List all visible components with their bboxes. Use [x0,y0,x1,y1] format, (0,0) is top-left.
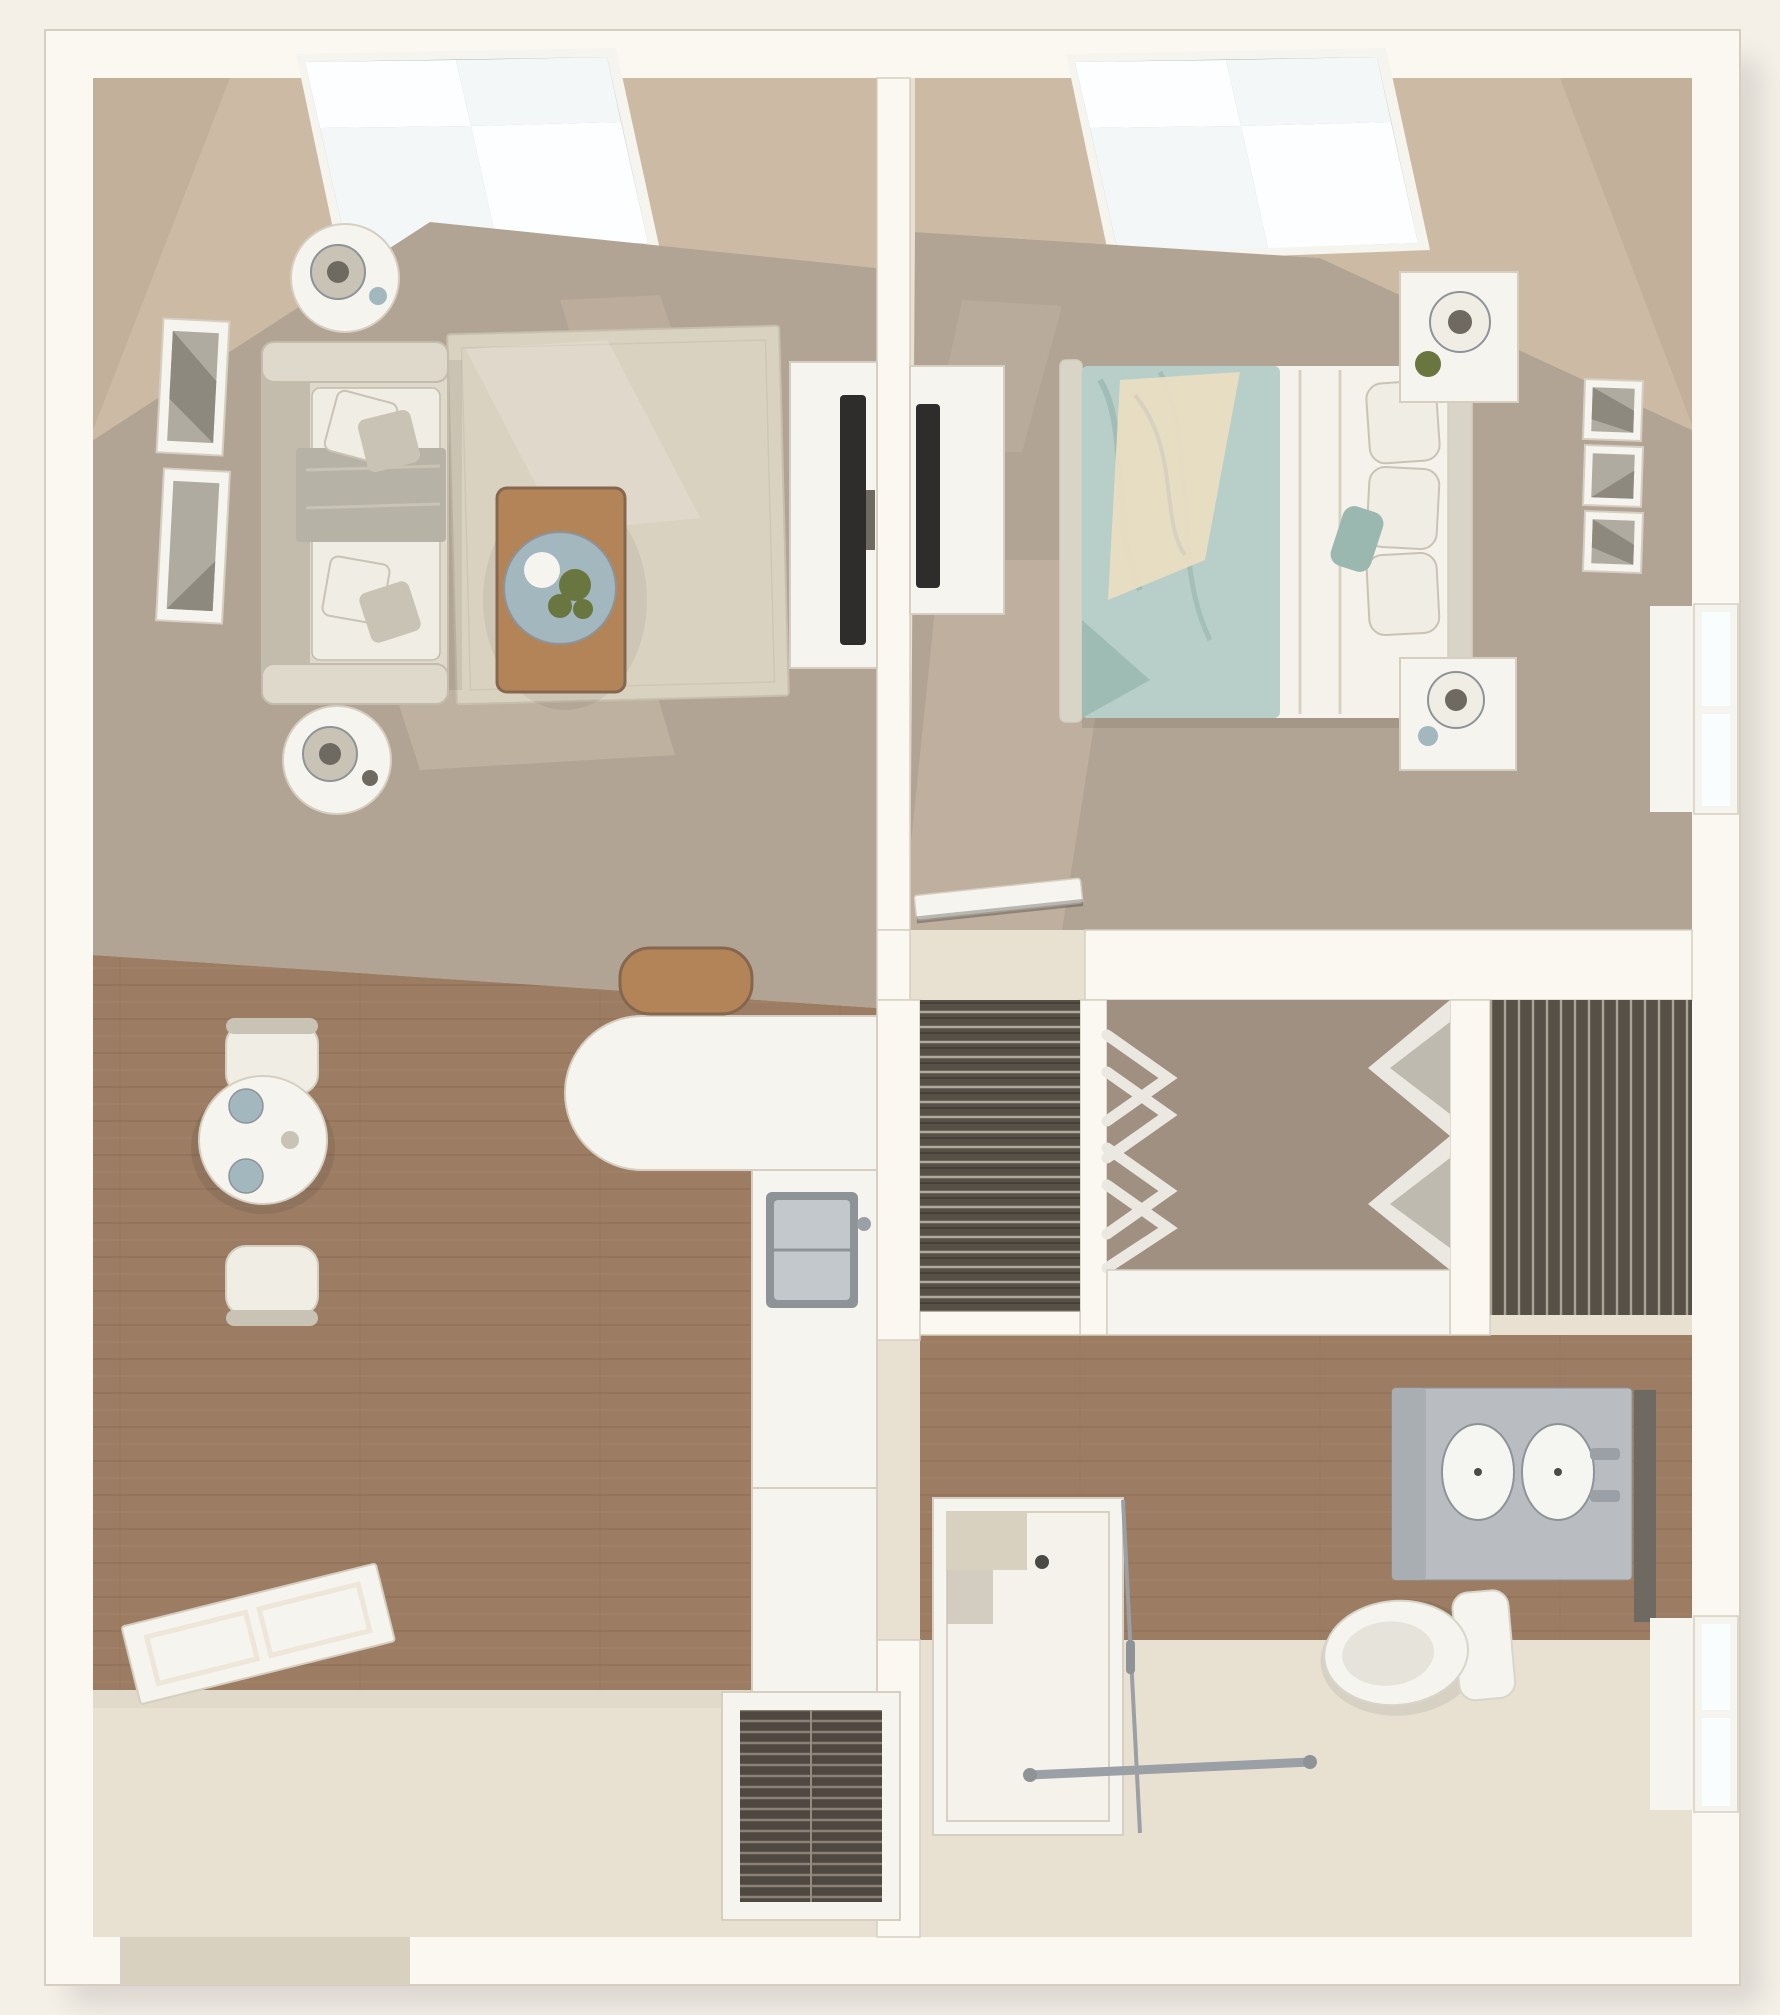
skylight-pane [456,57,621,126]
wire-shelves-texture [920,1000,1080,1312]
faucet-icon [1590,1490,1620,1502]
tv-mount [866,490,875,550]
bathroom-window [1650,1616,1738,1812]
walk-in-shower [933,1498,1140,1835]
closet-base-wall [920,1310,1080,1335]
skylight-pane [1241,122,1418,248]
lamp-finial [1445,689,1467,711]
lamp-finial [319,743,341,765]
skylight-pane [1226,57,1391,126]
window-sill [1650,1618,1694,1810]
wall-art-living [156,318,230,623]
dresser-tv [910,366,1004,614]
entry-doorway-gap [120,1937,410,1985]
dining-chair-back [226,1310,318,1326]
lamp-finial [327,261,349,283]
side-table-lamp-top [291,224,399,332]
window-pane [1702,1624,1730,1710]
skylight-bedroom [1066,48,1430,262]
grab-bar-mount [1023,1768,1037,1782]
bedroom-window [1650,604,1738,814]
closet-shelf-counter [1107,1270,1450,1335]
closet-divider-wall [1450,1000,1490,1335]
flat-tv-icon [916,404,940,588]
decor-bowl [524,552,560,588]
hvac-louver-closet [722,1692,900,1920]
sink-drain [1474,1468,1482,1476]
wood-basket [620,948,752,1014]
shower-bench-step [947,1570,993,1624]
plant-icon [573,599,593,619]
wall-art-bedroom [1583,379,1643,573]
closet-divider-wall [1080,1000,1107,1335]
table-decor [369,287,387,305]
kitchen-faucet-icon [857,1217,871,1231]
floor-plan-render [0,0,1780,2015]
bath-left-wall-upper [877,1000,920,1340]
table-decor [362,770,378,786]
sink-drain [1554,1468,1562,1476]
window-pane [1702,612,1730,706]
floor-plan-stage [0,0,1780,2015]
dining-chair-back [226,1018,318,1034]
footboard [1060,360,1082,722]
lamp-finial [1448,310,1472,334]
nightstand-top [1400,272,1518,402]
sofa [262,342,462,704]
shower-drain [1035,1555,1049,1569]
dining-chair [226,1246,318,1316]
wire-shelves-texture [1490,1000,1692,1315]
table-decor [1418,726,1438,746]
skylight-pane [1075,60,1241,128]
central-dividing-wall [877,78,910,930]
window-pane [1702,714,1730,806]
closet-row [920,1000,1692,1335]
place-setting [229,1159,263,1193]
bedroom-bath-wall [1085,930,1692,1000]
flat-tv-icon [840,395,866,645]
sofa-arm [262,664,448,704]
sofa-arm [262,342,448,382]
wall-stub [877,930,910,1000]
base-cabinets [752,1488,877,1693]
skylight-pane [305,60,471,128]
place-setting [229,1089,263,1123]
vanity-mirror [1634,1390,1656,1622]
plant-icon [548,594,572,618]
tv-console-living [790,362,877,668]
vanity-cabinet-front [1392,1388,1426,1580]
shower-bench-step [947,1512,1027,1570]
window-sill [1650,606,1694,812]
grab-bar-mount [1303,1755,1317,1769]
faucet-icon [1590,1448,1620,1460]
window-pane [1702,1718,1730,1806]
shower-glass-handle [1126,1640,1135,1674]
bed-pillow [1366,552,1440,636]
plant-icon [1415,351,1441,377]
coffee-table [483,488,647,710]
round-dining-table [199,1076,327,1204]
skylight-pane [1090,126,1268,252]
table-centerpiece [281,1131,299,1149]
peninsula-counter-curved [565,1016,877,1170]
nightstand-bottom [1400,658,1516,770]
side-table-lamp-bottom [283,706,391,814]
